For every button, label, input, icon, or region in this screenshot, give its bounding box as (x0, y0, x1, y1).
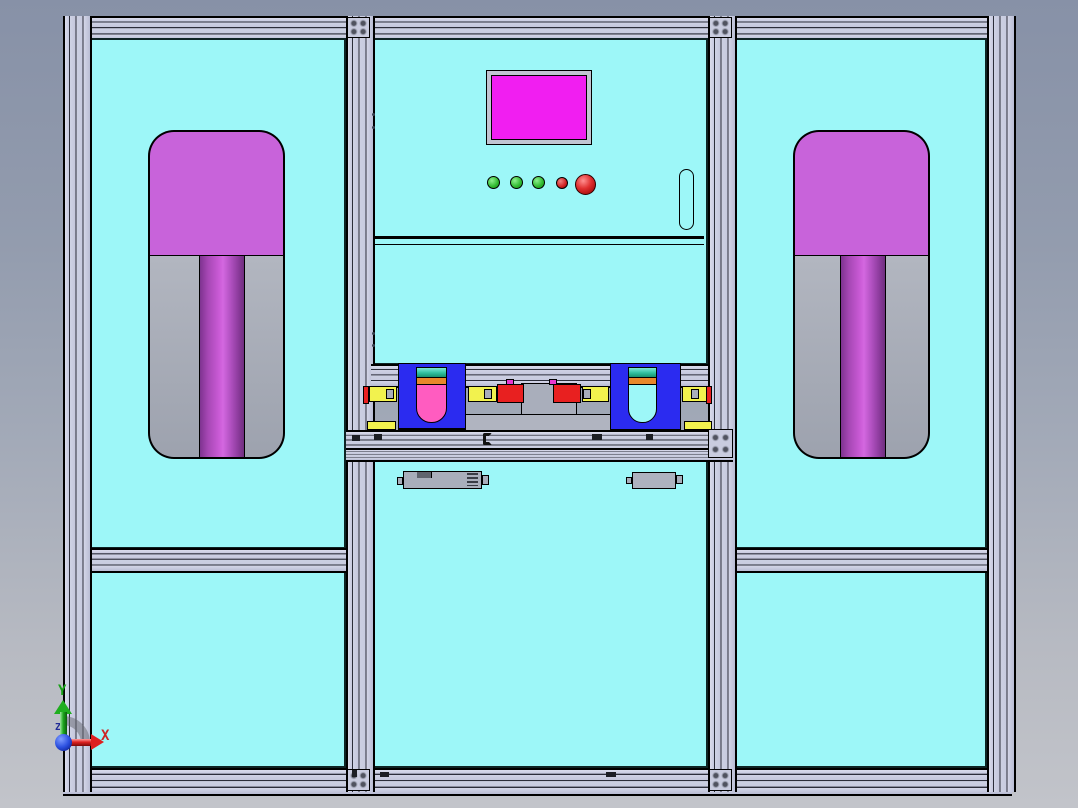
rail-carriage (386, 389, 394, 399)
extrusion-junction (708, 429, 733, 458)
extrusion-junction (709, 769, 732, 791)
frame-column-left (63, 16, 92, 792)
gripper-left-opening (416, 367, 447, 423)
gripper-band-orange (417, 378, 446, 385)
right-fixture (793, 130, 930, 459)
hmi-screen-frame (486, 70, 592, 145)
mini-actuator-notch (417, 472, 432, 478)
indicator-light-green-1 (487, 176, 500, 189)
indicator-light-green-2 (510, 176, 523, 189)
mini-actuator-tab (482, 475, 489, 485)
mini-actuator-tab (397, 477, 403, 485)
cad-viewport: Z Y X (0, 0, 1078, 808)
rail-end-stop-right (706, 386, 712, 404)
rail-carriage (484, 389, 492, 399)
indicator-light-red (556, 177, 568, 189)
rail-clip-mark (483, 433, 492, 445)
right-lower-panel (733, 569, 987, 768)
emergency-stop-button (575, 174, 596, 195)
detail-mark (646, 434, 653, 440)
left-fixture (148, 130, 285, 459)
clamp-block-left (497, 384, 524, 403)
extrusion-junction (709, 17, 732, 38)
left-lower-panel (88, 569, 346, 768)
base-pad-right (684, 421, 712, 430)
panel-screw-dot (372, 344, 375, 347)
extrusion-junction (347, 17, 370, 38)
panel-seam-line-thin (375, 244, 704, 245)
mini-plate-tab (676, 475, 683, 484)
gripper-band-orange (629, 378, 656, 385)
clamp-nub-left (506, 379, 514, 385)
detail-mark (352, 435, 360, 441)
gripper-right-opening (628, 367, 657, 423)
triad-x-label: X (101, 728, 109, 744)
rail-carriage (583, 389, 591, 399)
left-mid-beam (88, 548, 346, 573)
detail-mark (374, 434, 382, 440)
mini-plate-tab (626, 477, 632, 484)
detail-mark (352, 770, 357, 777)
mechanism-lower-rail-thin (346, 448, 733, 462)
left-fixture-cylinder (199, 256, 245, 459)
right-fixture-cap (793, 130, 930, 255)
detail-mark (380, 772, 389, 777)
indicator-light-green-3 (532, 176, 545, 189)
panel-screw-dot (372, 332, 375, 335)
hmi-screen (491, 75, 587, 140)
frame-column-center-right (708, 16, 737, 792)
gripper-right (610, 363, 681, 432)
gripper-band-teal (629, 368, 656, 378)
right-mid-beam (733, 548, 987, 573)
gripper-band-teal (417, 368, 446, 378)
clamp-block-right (553, 384, 581, 403)
frame-column-center-left (346, 16, 375, 792)
detail-mark (606, 772, 616, 777)
frame-column-right (987, 16, 1016, 792)
mini-plate (632, 472, 676, 489)
base-pad-left (367, 421, 396, 430)
clamp-nub-right (549, 379, 557, 385)
linear-rail-left-inner (468, 386, 497, 402)
right-fixture-cylinder (840, 256, 886, 459)
right-fixture-body (793, 255, 930, 459)
left-fixture-cap (148, 130, 285, 255)
left-fixture-body (148, 255, 285, 459)
triad-y-label: Y (58, 683, 66, 699)
mini-actuator-ridges (467, 473, 478, 486)
mini-actuator (403, 471, 482, 489)
extrusion-junction (347, 769, 370, 791)
detail-mark (592, 434, 602, 440)
center-lower-panel (371, 458, 708, 768)
frame-bottom-beam (63, 768, 1012, 796)
rail-carriage (691, 389, 699, 399)
panel-seam-line-thick (375, 236, 704, 239)
triad-origin-sphere (55, 734, 72, 751)
gripper-left (398, 363, 466, 431)
panel-screw-dot (372, 113, 375, 116)
panel-screw-dot (372, 126, 375, 129)
door-handle (679, 169, 694, 230)
